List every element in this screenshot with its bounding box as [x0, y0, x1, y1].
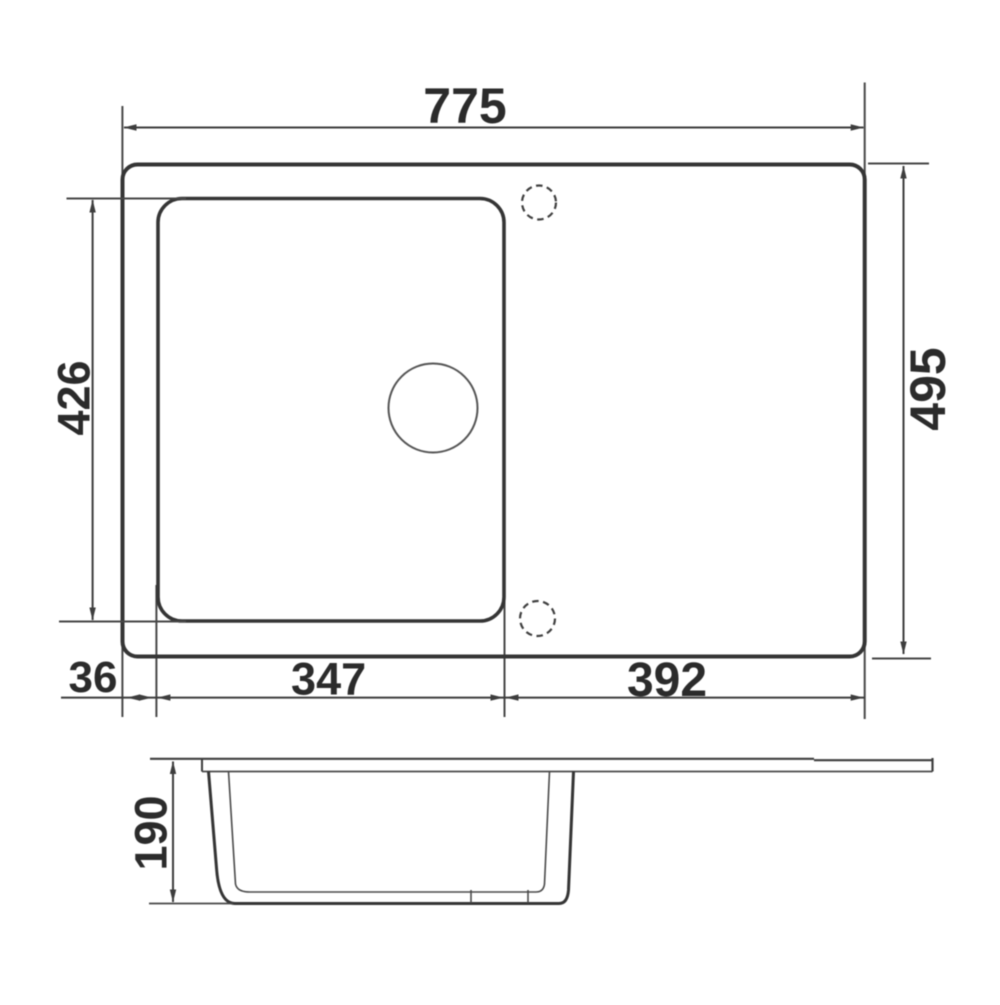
svg-text:775: 775 — [423, 78, 506, 134]
svg-text:392: 392 — [627, 654, 707, 707]
svg-text:190: 190 — [126, 795, 177, 870]
svg-text:426: 426 — [49, 360, 100, 435]
svg-text:495: 495 — [900, 347, 956, 430]
svg-text:347: 347 — [291, 654, 366, 705]
svg-text:36: 36 — [69, 653, 118, 702]
